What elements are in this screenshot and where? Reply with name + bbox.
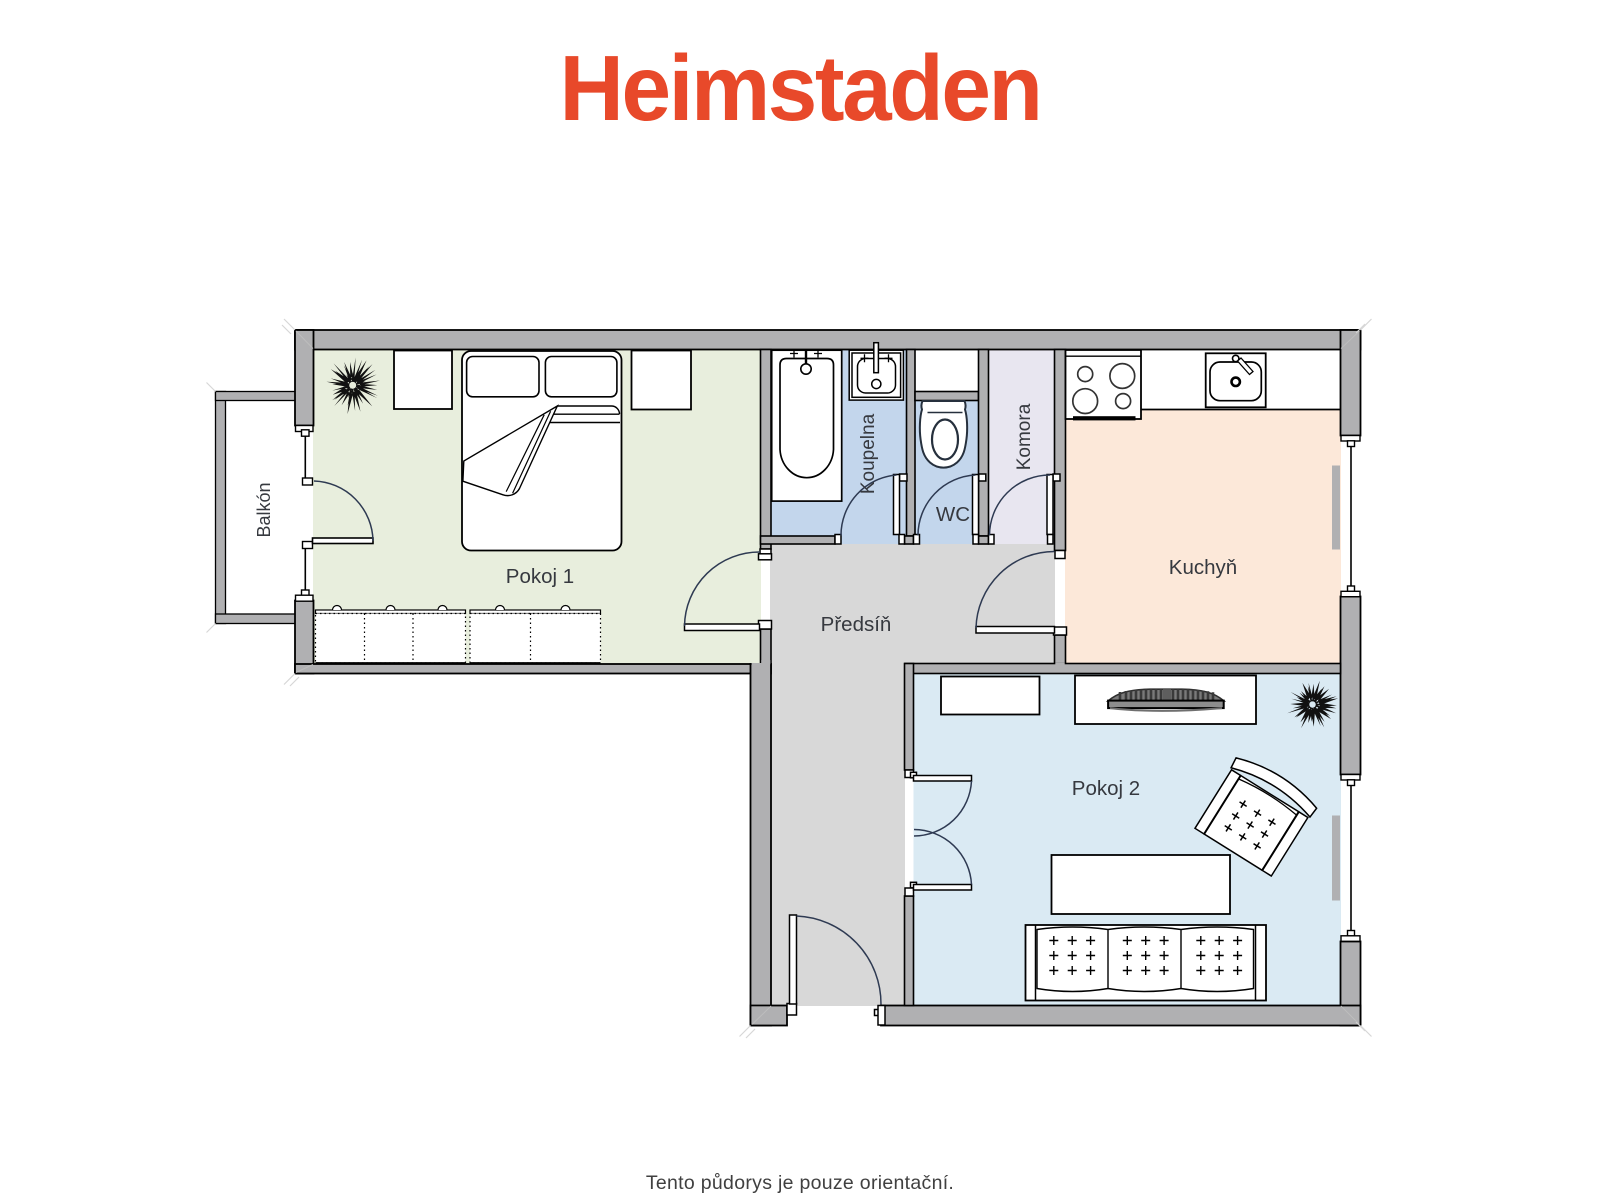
svg-text:Kuchyň: Kuchyň [1169, 556, 1237, 579]
svg-text:Komora: Komora [1014, 403, 1035, 470]
svg-text:Koupelna: Koupelna [858, 413, 879, 494]
svg-text:Balkón: Balkón [254, 482, 274, 537]
svg-text:WC: WC [936, 503, 970, 526]
svg-text:Předsíň: Předsíň [821, 613, 892, 636]
svg-text:Tento půdorys je pouze orienta: Tento půdorys je pouze orientační. [646, 1172, 954, 1194]
svg-text:Pokoj 1: Pokoj 1 [506, 565, 574, 588]
svg-text:Heimstaden: Heimstaden [560, 37, 1041, 140]
svg-text:Pokoj 2: Pokoj 2 [1072, 777, 1140, 800]
